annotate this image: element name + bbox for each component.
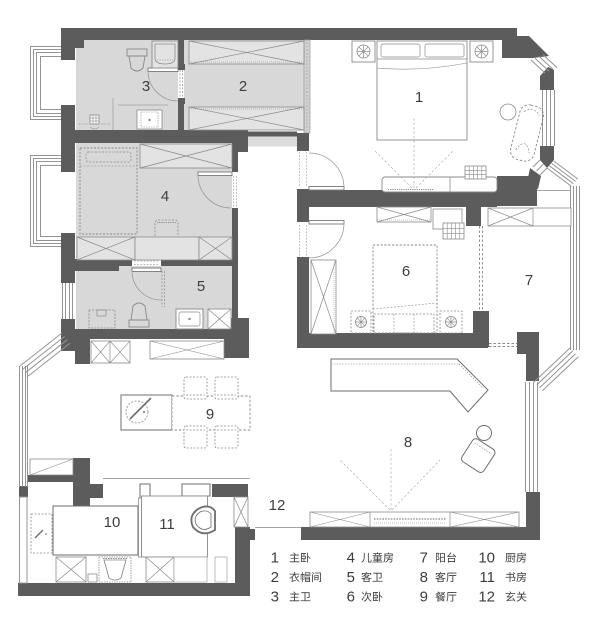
svg-text:12: 12: [269, 497, 286, 514]
svg-text:6: 6: [347, 589, 355, 606]
svg-text:4: 4: [161, 188, 169, 205]
svg-text:7: 7: [420, 550, 428, 567]
svg-text:3: 3: [271, 589, 279, 606]
svg-text:7: 7: [525, 272, 533, 289]
svg-text:10: 10: [104, 514, 121, 531]
svg-text:8: 8: [404, 434, 412, 451]
svg-text:11: 11: [159, 516, 175, 533]
svg-text:9: 9: [206, 406, 214, 423]
svg-text:12: 12: [478, 589, 495, 606]
svg-text:1: 1: [271, 550, 279, 567]
svg-text:10: 10: [478, 550, 495, 567]
svg-text:2: 2: [271, 569, 279, 586]
svg-text:4: 4: [347, 550, 355, 567]
svg-text:5: 5: [347, 569, 355, 586]
svg-text:1: 1: [415, 89, 423, 106]
svg-text:9: 9: [420, 589, 428, 606]
svg-text:11: 11: [479, 569, 495, 586]
svg-text:3: 3: [142, 78, 150, 95]
svg-text:2: 2: [239, 78, 247, 95]
svg-text:6: 6: [402, 263, 410, 280]
svg-text:5: 5: [197, 278, 205, 295]
svg-text:8: 8: [420, 569, 428, 586]
